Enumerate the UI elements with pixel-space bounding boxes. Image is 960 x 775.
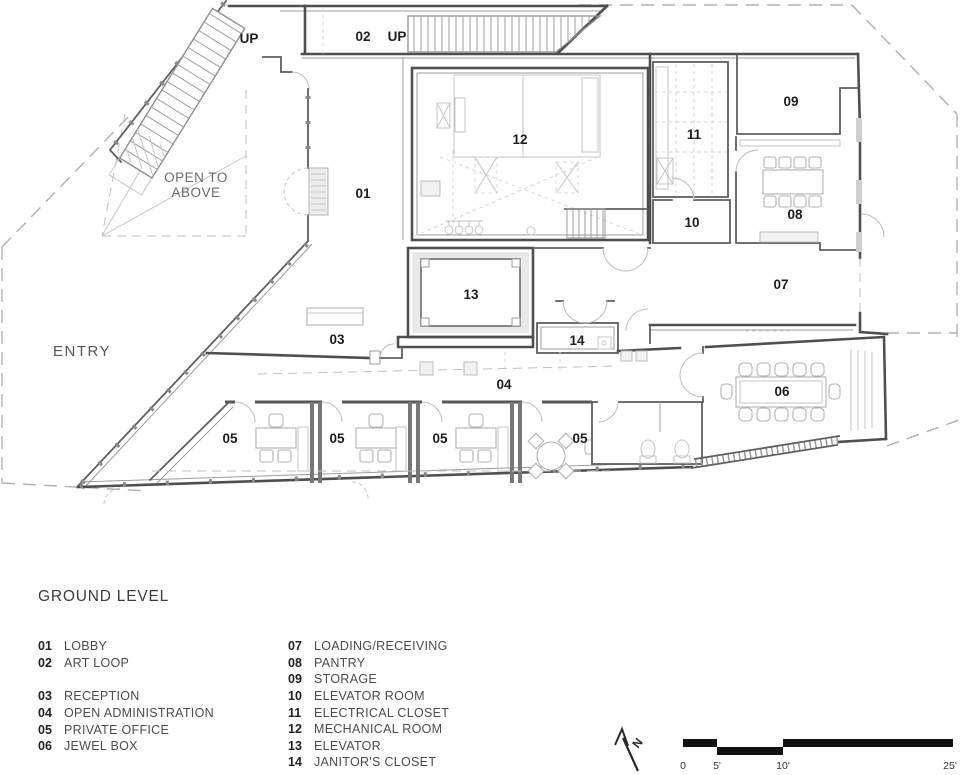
legend-item: 05PRIVATE OFFICE (38, 721, 214, 738)
legend-item: 02ART LOOP (38, 655, 214, 672)
label-05d: 05 (572, 431, 588, 446)
label-11: 11 (687, 127, 702, 142)
label-05b: 05 (329, 431, 345, 446)
legend-item: 03RECEPTION (38, 688, 214, 705)
label-01: 01 (355, 186, 371, 201)
restroom (592, 402, 702, 464)
legend-item: 11ELECTRICAL CLOSET (288, 704, 449, 721)
label-05a: 05 (222, 431, 238, 446)
scale-tick-5: 5' (713, 760, 721, 772)
label-09: 09 (783, 94, 798, 109)
north-label: N (629, 735, 645, 750)
label-06: 06 (774, 384, 790, 399)
scale-tick-0: 0 (680, 760, 686, 772)
stair-upper-left (109, 1, 245, 195)
label-13: 13 (463, 287, 479, 302)
label-open-above-1: OPEN TO (164, 170, 228, 185)
legend-item: 06JEWEL BOX (38, 738, 214, 755)
legend-item: 12MECHANICAL ROOM (288, 721, 449, 738)
label-up-left: UP (240, 31, 259, 46)
legend-column-left: 01LOBBY 02ART LOOP 03RECEPTION 04OPEN AD… (38, 638, 214, 755)
entry-vestibule (263, 6, 309, 89)
legend-item: 10ELEVATOR ROOM (288, 688, 449, 705)
north-arrow: N (615, 729, 646, 771)
legend-item: 04OPEN ADMINISTRATION (38, 705, 214, 722)
janitor-closet (533, 248, 650, 353)
scale-bar: 0 5' 10' 25' (680, 739, 957, 772)
label-03: 03 (329, 332, 345, 347)
page-title: GROUND LEVEL (38, 588, 169, 606)
legend-item: 14JANITOR'S CLOSET (288, 754, 449, 771)
label-open-above-2: ABOVE (171, 185, 220, 200)
legend-column-right: 07LOADING/RECEIVING 08PANTRY 09STORAGE 1… (288, 638, 449, 771)
mechanical-room (412, 68, 648, 240)
legend-item: 07LOADING/RECEIVING (288, 638, 449, 655)
label-05c: 05 (432, 431, 448, 446)
label-12: 12 (512, 132, 527, 147)
legend-item: 08PANTRY (288, 655, 449, 672)
back-of-house-rooms (650, 54, 887, 343)
scale-tick-25: 25' (943, 760, 957, 772)
label-04: 04 (496, 377, 512, 392)
label-02: 02 (355, 29, 370, 44)
legend-item: 09STORAGE (288, 671, 449, 688)
label-10: 10 (684, 215, 699, 230)
legend-item: 13ELEVATOR (288, 738, 449, 755)
label-07: 07 (773, 277, 788, 292)
scale-tick-10: 10' (776, 760, 790, 772)
private-offices (150, 402, 616, 483)
label-up-top: UP (388, 29, 407, 44)
label-14: 14 (569, 333, 585, 348)
legend-item: 01LOBBY (38, 638, 214, 655)
label-entry: ENTRY (53, 343, 111, 360)
floor-plan-sheet: UP 02 UP 01 12 09 11 10 08 07 13 14 03 0… (0, 0, 960, 775)
label-08: 08 (787, 207, 803, 222)
